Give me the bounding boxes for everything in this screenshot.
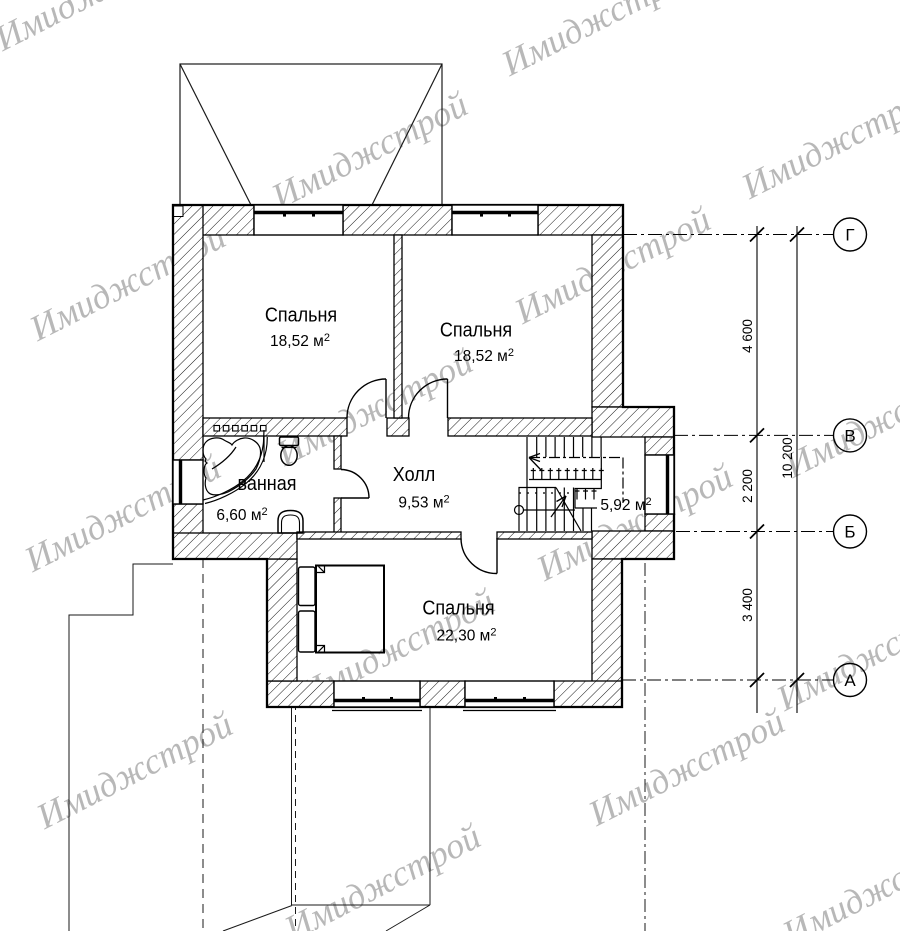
- svg-text:Спальня: Спальня: [265, 305, 337, 327]
- svg-text:9,53 м2: 9,53 м2: [398, 494, 449, 512]
- svg-text:2 200: 2 200: [740, 469, 755, 503]
- svg-text:ванная: ванная: [238, 473, 297, 495]
- svg-text:А: А: [844, 671, 856, 690]
- svg-text:18,52 м2: 18,52 м2: [270, 332, 330, 350]
- svg-text:5,92 м2: 5,92 м2: [600, 496, 651, 514]
- svg-text:Б: Б: [844, 523, 855, 542]
- svg-text:В: В: [844, 426, 855, 445]
- svg-text:Г: Г: [845, 226, 854, 245]
- svg-text:18,52 м2: 18,52 м2: [454, 347, 514, 365]
- svg-text:10 200: 10 200: [780, 437, 795, 478]
- svg-text:Спальня: Спальня: [422, 598, 494, 620]
- svg-text:3 400: 3 400: [740, 588, 755, 622]
- svg-text:22,30 м2: 22,30 м2: [437, 627, 497, 645]
- svg-text:Спальня: Спальня: [440, 320, 512, 342]
- svg-text:6,60 м2: 6,60 м2: [216, 506, 267, 524]
- svg-text:4 600: 4 600: [740, 319, 755, 353]
- svg-text:Холл: Холл: [393, 464, 435, 486]
